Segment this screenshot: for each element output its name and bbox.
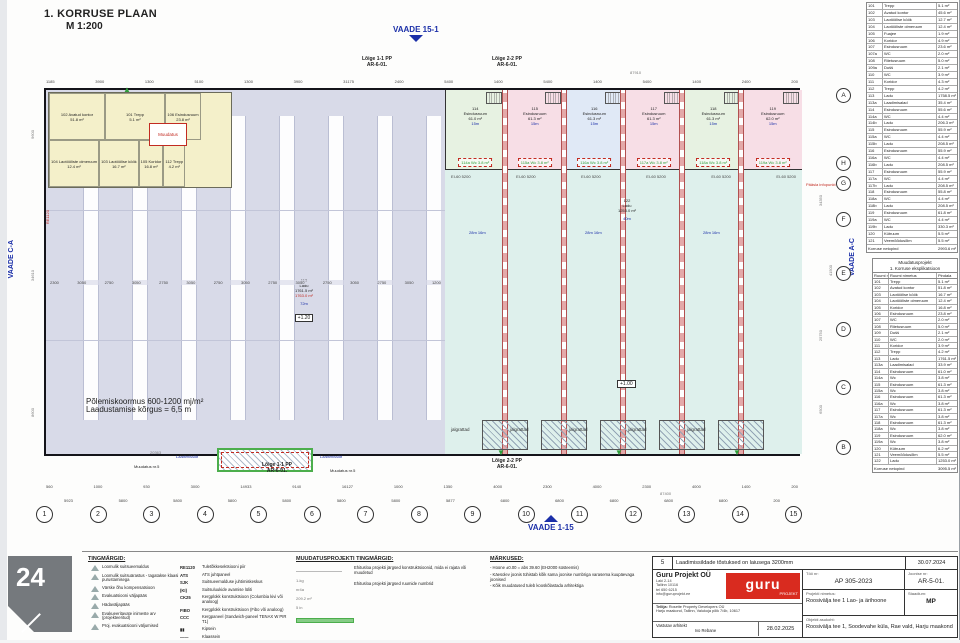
legend-symbol-icon	[88, 586, 102, 592]
dim-value: 2400	[395, 79, 404, 84]
room-area: 3.8 m²	[937, 401, 957, 406]
section-mark-2-2-bottom: Lõige 2-2 PPAR-6-01.	[492, 458, 522, 470]
firewall	[738, 90, 744, 454]
legend-item-label: Hädaväljapääs	[102, 603, 130, 608]
logo-text: guru	[745, 577, 780, 591]
room-name: Esindusruum	[883, 148, 937, 154]
architect-name: Ivo Rebane	[656, 628, 755, 633]
fire-load-note: Põlemiskoormus 600-1200 mj/m² Laadustami…	[86, 398, 203, 414]
level-marker: +1.00	[617, 372, 636, 390]
legend-item: Loomulik suitsueemaldus	[88, 565, 180, 571]
room-area: 3.8 m²	[937, 388, 957, 393]
room-area: 5.1 m²	[937, 279, 957, 284]
legend-code: ATS	[180, 573, 202, 578]
change-legend: MUUDATUSPROJEKTI TINGMÄRGID: 1-kg nr4a 2…	[296, 556, 476, 623]
drawing-sheet: 1. KORRUSE PLAAN M 1:200 VAADE 15-1 VAAD…	[0, 0, 960, 640]
warehouse-left-zone: 102 Avatud kontor51.8 m² 101 Trepp5.1 m²…	[46, 90, 445, 454]
room-name: Koridor	[889, 343, 937, 348]
dim-value: 1400	[593, 79, 602, 84]
dim-right: 41500	[828, 265, 833, 276]
table-row: 118 Esindusruum 55.8 m²	[867, 189, 957, 196]
grid-axis-rows: HGFEDCBA	[836, 88, 852, 456]
unit-bay: 119 Esindusruum 62.0 m² 15m 119a Wc 3.8 …	[743, 90, 803, 169]
room-number: 114a	[873, 375, 889, 380]
room-area: 1253.0 m²	[937, 458, 957, 463]
table-row: 121 Veemõõdusõlm 5.5 m²	[867, 238, 957, 245]
room-number: 113a	[867, 100, 883, 106]
room-number: 105	[867, 31, 883, 37]
info-band-divider	[82, 551, 958, 552]
table-rows: 101 Trepp 5.1 m² 102 Avatud kontor 45.6 …	[867, 3, 957, 245]
room-number: 102	[873, 285, 889, 290]
evacuation-arrow-icon: ▼	[615, 449, 623, 456]
dim-value: 3050	[77, 280, 86, 285]
room-number: 118a	[873, 426, 889, 431]
fire-rating-label: EI-60 5200	[516, 174, 536, 179]
room-number: 113	[867, 93, 883, 99]
dim-value: 6800	[555, 498, 564, 503]
room-number: 118b	[867, 203, 883, 209]
room-number: 104	[873, 298, 889, 303]
table-row: 107a WC 2.0 m²	[867, 51, 957, 58]
room-area: 4.4 m²	[937, 155, 957, 161]
room-number: 119b	[867, 224, 883, 230]
dock-hatch	[659, 420, 705, 450]
dim-value: 1000	[93, 484, 102, 489]
room-area: 61.3 m²	[937, 407, 957, 412]
aisle-line	[46, 340, 445, 341]
room-number: 121	[867, 238, 883, 244]
room-name: Ladu	[883, 93, 937, 99]
unit-bay: 117 Esindusruum 61.3 m² 15m 117a Wc 3.8 …	[624, 90, 684, 169]
project-column: Töö nr: AP 305-2023 Joonise nr: AR-5-01.…	[803, 570, 957, 638]
room-name: Esindusruum	[883, 189, 937, 195]
client-address: Harju maakond, Tallinn, Valukoja põik 7/…	[656, 609, 799, 613]
table-row: 115b Ladu 208.5 m²	[867, 141, 957, 148]
firewall	[561, 90, 567, 454]
evacuation-arrow-icon: ▼	[497, 449, 505, 456]
evacuation-arrow-icon: ▲	[123, 86, 131, 93]
room-105: 105 Koridor16.8 m²	[139, 140, 164, 187]
bike-parking-label: jalgrattad	[687, 427, 706, 432]
legend-code: ——	[180, 635, 202, 640]
unit-bay: 116 Esindusruum 61.3 m² 15m 116a Wc 3.8 …	[564, 90, 624, 169]
room-name: Esindusruum	[883, 169, 937, 175]
room-name: Koridor	[889, 305, 937, 310]
room-area: 16.7 m²	[937, 292, 957, 297]
dim-value: 6800	[664, 498, 673, 503]
table-row: 111 Koridor 4.3 m²	[867, 79, 957, 86]
room-number: 114	[873, 369, 889, 374]
room-number: 101	[873, 279, 889, 284]
work-number: AP 305-2023	[806, 578, 901, 585]
legend-code-item: RE1120 Tuletõkkesektsiooni piir	[180, 565, 288, 570]
room-name: Dušš	[883, 65, 937, 71]
dim-right: 25750	[818, 330, 823, 341]
table-row: 117b Ladu 208.5 m²	[867, 183, 957, 190]
dim-value: 14933	[240, 484, 251, 489]
room-area: 4.4 m²	[937, 196, 957, 202]
room-number: 120	[873, 446, 889, 451]
page-scale: M 1:200	[66, 21, 103, 32]
room-number: 103	[873, 292, 889, 297]
dim-value: 2300	[543, 484, 552, 489]
logo-subtext: PROJEKT	[780, 591, 798, 596]
table-row: 109a Dušš 2.1 m²	[867, 65, 957, 72]
room-number: 102	[867, 10, 883, 16]
table-row: 114a WC 4.4 m²	[867, 114, 957, 121]
table-rows: 101 Trepp 5.1 m² 102 Avatud kontor 51.8 …	[873, 279, 957, 465]
room-number: 117a	[873, 414, 889, 419]
legend-item: Värske õhu kompensatsioon	[88, 586, 180, 592]
grid-bubble: 1	[36, 506, 53, 523]
legend-code-item: ATS ATS juhtpaneel	[180, 573, 288, 578]
room-name: Ladu	[883, 120, 937, 126]
grid-bubble: H	[836, 156, 851, 171]
unit-rack-note: 15m	[650, 121, 658, 126]
room-name: Laadimisalad	[883, 100, 937, 106]
room-area: 208.5 m²	[937, 162, 957, 168]
room-name: Kütruum	[889, 446, 937, 451]
unit-wc-label: 114a Wc 3.8 m²	[458, 158, 492, 167]
room-name: Wc	[889, 388, 937, 393]
section-mark-1-1-bottom: Lõige 1-1 PPAR-6-01.	[262, 462, 292, 474]
room-number: 107	[867, 44, 883, 50]
room-number: 106	[867, 38, 883, 44]
firewall	[679, 90, 685, 454]
room-number: 112	[867, 86, 883, 92]
room-number: 119a	[867, 217, 883, 223]
notes: MÄRKUSED: - Hoone ±0.00 = abs 39.60 (EH2…	[490, 556, 650, 591]
dim-left: 9600	[30, 130, 35, 139]
change-highlight-bar	[296, 618, 354, 623]
revision-date: 30.07.2024	[905, 557, 957, 569]
room-number: 116b	[867, 162, 883, 168]
dim-value: 3050	[296, 280, 305, 285]
room-number: 109a	[867, 65, 883, 71]
room-number: 107a	[867, 51, 883, 57]
unit-rack-note: 15m	[590, 121, 598, 126]
change-5-label: Muudatus nr.5	[134, 464, 159, 469]
dim-value: 1185	[46, 79, 55, 84]
site-watermark: 24	[8, 556, 72, 632]
legend-code: CCC	[180, 615, 202, 620]
legend-code-item: SJK Suitsueemalduse juhtimiskeskus	[180, 580, 288, 585]
dim-value: 9140	[292, 484, 301, 489]
room-name: Veemõõdusõlm	[889, 452, 937, 457]
unit-wc-label: 118a Wc 3.8 m²	[696, 158, 730, 167]
room-area: 4.4 m²	[937, 217, 957, 223]
change-5-label: Muudatus nr.5	[330, 468, 355, 473]
note-line: - Käesolev joonis tühistab kõik sama joo…	[490, 573, 650, 583]
grid-bubble: 4	[197, 506, 214, 523]
legend-symbol-icon	[88, 624, 102, 630]
grid-bubble: D	[836, 322, 851, 337]
dim-value: 5400	[643, 79, 652, 84]
room-area: 16.8 m²	[937, 305, 957, 310]
room-area: 61.3 m²	[937, 394, 957, 399]
room-name: WC	[883, 114, 937, 120]
room-area: 3.8 m²	[937, 375, 957, 380]
table-row: 103 Laotöölise köök 12.7 m²	[867, 17, 957, 24]
room-area: 12.4 m²	[937, 298, 957, 303]
fire-rating-label: EI-60 5200	[451, 174, 471, 179]
fire-rating-label: EI-60 5200	[646, 174, 666, 179]
legend-code-label: Kergplokk konstruktsioon (Fibo või analo…	[202, 608, 283, 613]
unit-wc-label: 119a Wc 3.8 m²	[756, 158, 790, 167]
aisle-line	[46, 210, 445, 211]
loading-dock-band: jalgrattadjalgrattadjalgrattadjalgrattad…	[445, 416, 802, 454]
table-row: 105 Fuajee 1.9 m²	[867, 31, 957, 38]
note-line: - Hoone ±0.00 = abs 39.60 (EH2000 süstee…	[490, 566, 650, 571]
room-number: 106	[873, 311, 889, 316]
watermark-number: 24	[16, 562, 45, 593]
notes-heading: MÄRKUSED:	[490, 556, 650, 562]
room-name: Trepp	[889, 279, 937, 284]
room-name: Laotööliste olmeruum	[889, 298, 937, 303]
room-name: WC	[889, 317, 937, 322]
room-number: 117	[873, 407, 889, 412]
dim-value: 1300	[145, 79, 154, 84]
table-row: 108 Riietusruum 5.0 m²	[867, 58, 957, 65]
office-area: 102 Avatud kontor51.8 m² 101 Trepp5.1 m²…	[48, 92, 232, 188]
room-area: 208.5 m²	[937, 141, 957, 147]
dim-misc: 20363	[150, 450, 161, 455]
stairs-icon	[664, 92, 680, 104]
unit-bay: 115 Esindusruum 61.3 m² 15m 115a Wc 3.8 …	[505, 90, 565, 169]
legend-code-label: Suitsuluukide avamise lüliti	[202, 588, 252, 593]
room-number: 115	[873, 382, 889, 387]
dim-value: 1300	[244, 79, 253, 84]
grid-bubble: 8	[411, 506, 428, 523]
company-logo: guru PROJEKT	[726, 573, 800, 599]
room-area: 55.6 m²	[937, 107, 957, 113]
room-name: Dušš	[889, 330, 937, 335]
title-block: 5 Laadimissildade tõstuksed on laiusega …	[652, 556, 958, 638]
dim-left: 8600	[30, 408, 35, 417]
room-name: Wc	[889, 426, 937, 431]
loading-bridge-label: Laadimissild	[320, 454, 342, 459]
grid-bubble: 12	[625, 506, 642, 523]
room-number: 115	[867, 127, 883, 133]
room-area: 62.0 m²	[937, 433, 957, 438]
room-number: 122	[873, 458, 889, 463]
scan-edge	[0, 0, 7, 640]
room-name: Veemõõdusõlm	[883, 238, 937, 244]
floor-plan: 102 Avatud kontor51.8 m² 101 Trepp5.1 m²…	[44, 88, 800, 456]
grid-bubble: 7	[357, 506, 374, 523]
legend-code-label: ATS juhtpaneel	[202, 573, 230, 578]
rack-length-note: 28m 16m	[703, 230, 720, 235]
architect-row: Vastutav arhitekt Ivo Rebane 28.02.2025	[653, 622, 802, 636]
dim-value: 3900	[294, 79, 303, 84]
room-number: 111	[873, 343, 889, 348]
watermark-fold-icon	[8, 606, 34, 632]
legend-item-label: Evakueeritavate inimeste arv (projekteer…	[102, 612, 180, 622]
dim-value: 2750	[323, 280, 332, 285]
grid-bubble: 2	[90, 506, 107, 523]
table-row: 113a Laadimisalad 35.4 m²	[867, 100, 957, 107]
room-name: WC	[883, 72, 937, 78]
room-name: Koridor	[883, 79, 937, 85]
dim-value: 3900	[95, 79, 104, 84]
table-row: 120 Kütruum 5.5 m²	[867, 231, 957, 238]
room-number: 103	[867, 17, 883, 23]
grid-bubble: 14	[732, 506, 749, 523]
fire-rating-label: EI-60 5200	[581, 174, 601, 179]
dim-value: 6800	[719, 498, 728, 503]
explication-table-new: Muudatusprojekt1. Korruse eksplikatsioon…	[872, 258, 958, 473]
grid-bubble: 10	[518, 506, 535, 523]
room-area: 3.9 m²	[937, 72, 957, 78]
dim-value: 5923	[64, 498, 73, 503]
room-area: 3.8 m²	[937, 414, 957, 419]
room-area: 3.8 m²	[937, 439, 957, 444]
bike-parking-label: jalgrattad	[451, 427, 470, 432]
room-area: 55.8 m²	[937, 189, 957, 195]
dim-right: 34350	[818, 195, 823, 206]
legend-item-label: Loomulik suitsuärastus - tagatakse klaas…	[102, 574, 180, 584]
view-marker-top: VAADE 15-1	[393, 25, 439, 42]
dock-hatch	[718, 420, 764, 450]
table-row: 115 Esindusruum 55.9 m²	[867, 127, 957, 134]
rack-length-note: 28m 16m	[585, 230, 602, 235]
grid-axis-columns: 123456789101112131415	[36, 506, 802, 523]
room-number: 114b	[867, 120, 883, 126]
legend-symbol-icon	[88, 574, 102, 580]
dim-value: 1000	[394, 484, 403, 489]
room-number: 108	[867, 58, 883, 64]
room-name: Trepp	[889, 349, 937, 354]
room-name: Esindusruum	[889, 311, 937, 316]
signature-date: 28.02.2025	[758, 622, 802, 636]
grid-bubble: 13	[678, 506, 695, 523]
room-area: 4.4 m²	[937, 114, 957, 120]
room-name: Ladu	[889, 458, 937, 463]
room-number: 120	[867, 231, 883, 237]
room-area: 2.0 m²	[937, 51, 957, 57]
dim-value: 2400	[742, 79, 751, 84]
gate-info-label: Pääsla infopunkt	[806, 182, 836, 187]
object-location: Roosivälja tee 1, Soodevahe küla, Rae va…	[806, 624, 954, 630]
stage-cell: Staadium: MP	[905, 590, 957, 615]
room-number: 108	[873, 324, 889, 329]
dim-value: 5800	[119, 498, 128, 503]
legend-code-item: —— Klaassein	[180, 635, 288, 640]
room-area: 55.9 m²	[937, 127, 957, 133]
room-area: 33.9 m²	[937, 362, 957, 367]
room-name: WC	[883, 134, 937, 140]
legend-code-label: Klaassein	[202, 635, 220, 640]
room-number: 116a	[867, 155, 883, 161]
room-name: Ladu	[883, 141, 937, 147]
project-name: Roosivälja tee 1 Lao- ja ärihoone	[806, 598, 901, 604]
legend-code-list: RE1120 Tuletõkkesektsiooni piir ATS ATS …	[180, 565, 288, 643]
room-name: Ladu	[883, 162, 937, 168]
room-name: Riietusruum	[889, 324, 937, 329]
fire-rating-row: EI-60 5200EI-60 5200EI-60 5200EI-60 5200…	[451, 174, 796, 179]
client-name: Rosette Property Developers OÜ	[669, 605, 725, 609]
room-number: 118a	[867, 196, 883, 202]
room-name: Laadimisalad	[889, 362, 937, 367]
room-number: 113	[873, 356, 889, 361]
room-name: Laotöölise köök	[889, 292, 937, 297]
room-area: 23.8 m²	[937, 311, 957, 316]
dim-right: 6500	[818, 405, 823, 414]
dim-left: 34610	[30, 270, 35, 281]
legend-code-item: FIBO Kergplokk konstruktsioon (Fibo või …	[180, 608, 288, 613]
room-name: Laotööliste olmeruum	[883, 24, 937, 30]
legend-code-item: (KI) Suitsuluukide avamise lüliti	[180, 588, 288, 593]
view-marker-top-label: VAADE 15-1	[393, 25, 439, 34]
dim-value: 31175	[343, 79, 354, 84]
room-area: 5.0 m²	[937, 324, 957, 329]
grid-bubble: 9	[464, 506, 481, 523]
room-name: Avatud kontor	[883, 10, 937, 16]
dim-value: 2300	[50, 280, 59, 285]
legend-code-item: ▮▮ Kipsein	[180, 627, 288, 632]
room-area: 1761.5 m²	[937, 356, 957, 361]
table-row: 101 Trepp 5.1 m²	[867, 3, 957, 10]
grid-bubble: 6	[304, 506, 321, 523]
explication-table-old: 101 Trepp 5.1 m² 102 Avatud kontor 45.6 …	[866, 2, 958, 253]
legend-symbol-icon	[88, 603, 102, 609]
table-row: 112 Trepp 4.2 m²	[867, 86, 957, 93]
table-row: 116 Esindusruum 55.9 m²	[867, 148, 957, 155]
legend-item: Loomulik suitsuärastus - tagatakse klaas…	[88, 574, 180, 584]
room-name: WC	[883, 155, 937, 161]
room-area: 3.9 m²	[937, 343, 957, 348]
note-line: - Kõik muudatused tuleb kooskõlastada ar…	[490, 584, 650, 589]
client-info: Tellija: Rosette Property Developers OÜ …	[653, 604, 802, 622]
room-area: 4.9 m²	[937, 38, 957, 44]
revision-text: Laadimissildade tõstuksed on laiusega 32…	[673, 560, 905, 566]
bike-parking-label: jalgrattad	[569, 427, 588, 432]
room-name: Avatud kontor	[889, 285, 937, 290]
dim-row-bottom-2: 5923580058005800580058005800587768006800…	[64, 498, 780, 503]
room-name: Wc	[889, 439, 937, 444]
dim-value: 2750	[105, 280, 114, 285]
dim-value: 3050	[405, 280, 414, 285]
dim-value: 3050	[241, 280, 250, 285]
stairs-icon	[605, 92, 621, 104]
legend-code: SJK	[180, 580, 202, 585]
room-112: 112 Trepp4.2 m²	[163, 140, 185, 187]
table-row: 114b Ladu 206.3 m²	[867, 120, 957, 127]
section-mark-2-2-top: Lõige 2-2 PP AR-6-01.	[492, 56, 522, 68]
room-number: 114a	[867, 114, 883, 120]
change-legend-symbols: 1-kg nr4a 209.2 m² 5 in	[296, 566, 354, 623]
dim-value: 2300	[642, 484, 651, 489]
room-area: 2.0 m²	[937, 337, 957, 342]
table-row: 119b Ladu 330.3 m²	[867, 224, 957, 231]
firewall	[502, 90, 508, 454]
dim-value: 5400	[543, 79, 552, 84]
notes-list: - Hoone ±0.00 = abs 39.60 (EH2000 süstee…	[490, 566, 650, 589]
room-name: Esindusruum	[889, 369, 937, 374]
dim-value: 200	[791, 484, 798, 489]
dim-value: 4000	[593, 484, 602, 489]
legend-code-label: Kergpaneel (Sandwich-paneel TENAX W PIR …	[202, 615, 288, 625]
drawing-number-cell: Joonise nr: AR-5-01.	[905, 570, 957, 589]
section-ref-label: AR-6-01.	[492, 62, 522, 68]
change-legend-heading: MUUDATUSPROJEKTI TINGMÄRGID:	[296, 556, 476, 562]
change-legend-item: Ehitusloa projekti järgsed ruumide numbr…	[354, 582, 476, 587]
revision-row: 5 Laadimissildade tõstuksed on laiusega …	[653, 557, 957, 570]
grid-bubble: C	[836, 380, 851, 395]
room-number: 115a	[867, 134, 883, 140]
dim-value: 1350	[444, 484, 453, 489]
